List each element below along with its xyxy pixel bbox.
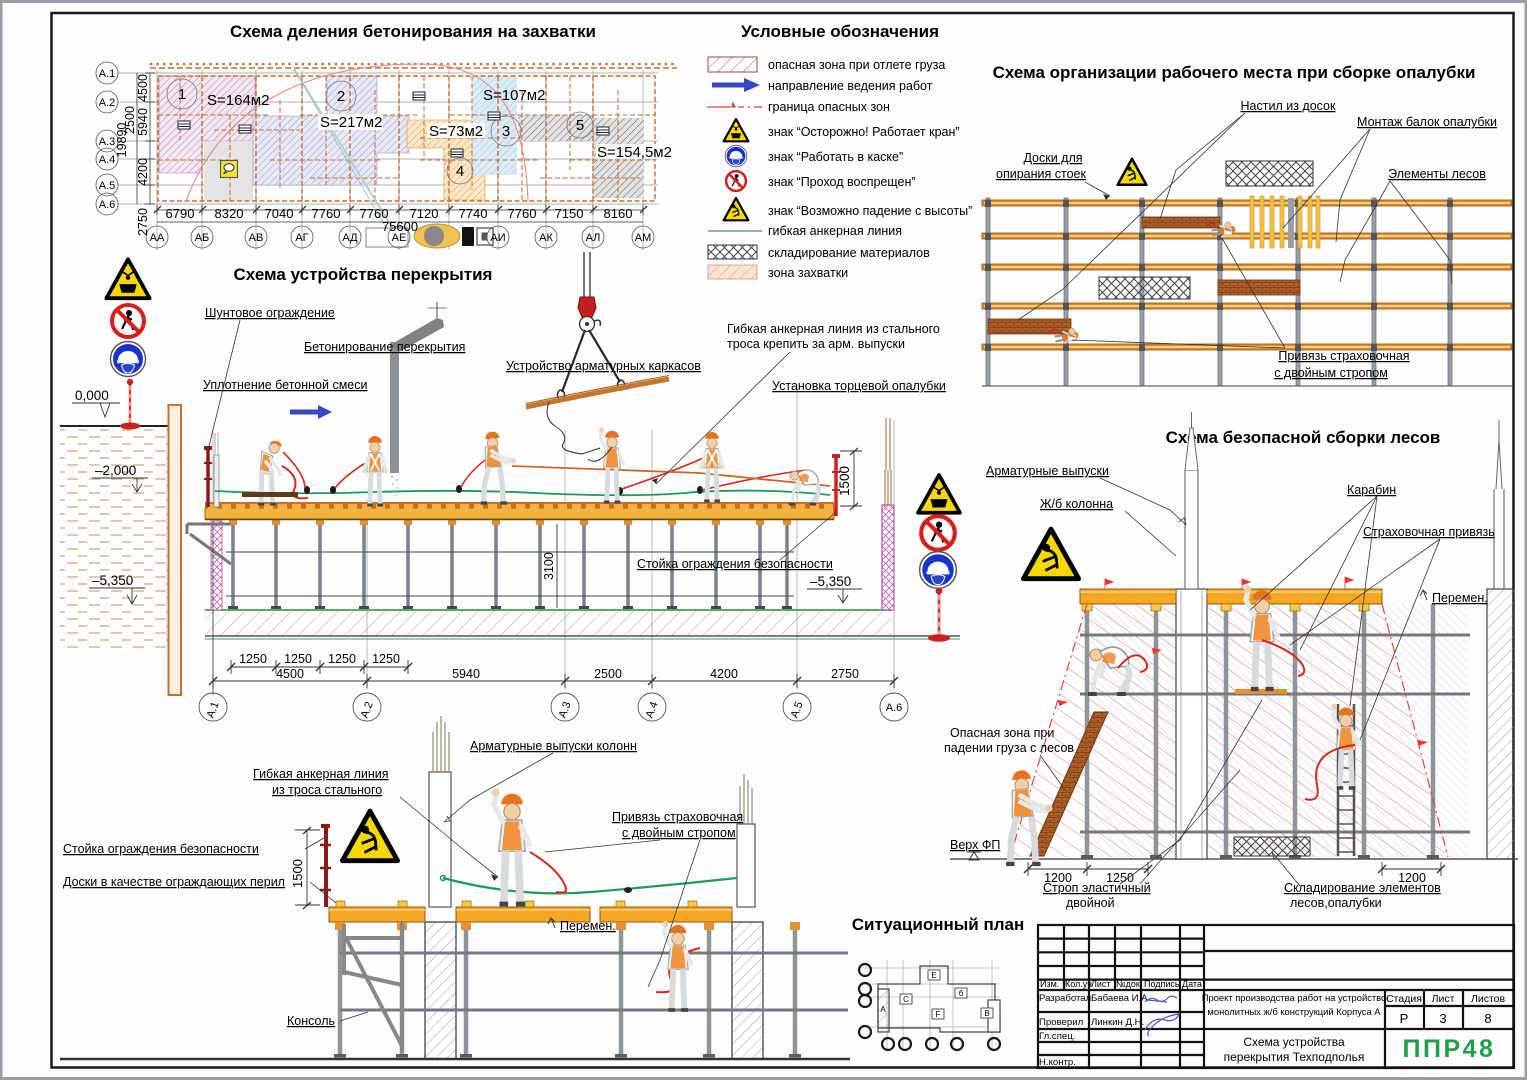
svg-text:знак “Работать в каске”: знак “Работать в каске” xyxy=(768,150,903,164)
svg-text:5: 5 xyxy=(576,117,584,134)
svg-text:Установка торцевой опалубки: Установка торцевой опалубки xyxy=(772,379,946,393)
svg-text:Гибкая анкерная линия: Гибкая анкерная линия xyxy=(253,767,389,781)
svg-text:знак “Проход воспрещен”: знак “Проход воспрещен” xyxy=(768,175,916,189)
svg-text:Лист: Лист xyxy=(1091,979,1111,989)
svg-text:8320: 8320 xyxy=(215,206,244,221)
svg-text:4500: 4500 xyxy=(276,667,304,681)
svg-text:гибкая анкерная линия: гибкая анкерная линия xyxy=(768,224,902,238)
svg-text:Стойка ограждения безопасности: Стойка ограждения безопасности xyxy=(637,557,833,571)
svg-text:двойной: двойной xyxy=(1066,896,1115,910)
svg-text:7150: 7150 xyxy=(555,206,584,221)
svg-text:Условные обозначения: Условные обозначения xyxy=(741,22,939,41)
svg-text:8: 8 xyxy=(1484,1011,1491,1026)
svg-text:7040: 7040 xyxy=(265,206,294,221)
svg-text:3100: 3100 xyxy=(542,552,556,580)
svg-text:6790: 6790 xyxy=(166,206,195,221)
svg-text:складирование материалов: складирование материалов xyxy=(768,246,930,260)
svg-text:А.5: А.5 xyxy=(99,180,116,192)
svg-text:А.6: А.6 xyxy=(99,199,116,211)
svg-text:АМ: АМ xyxy=(635,232,652,244)
svg-text:S=73м2: S=73м2 xyxy=(429,123,483,140)
svg-text:3: 3 xyxy=(502,123,510,140)
svg-text:с двойным стропом: с двойным стропом xyxy=(1274,366,1388,380)
svg-text:Устройство арматурных каркасов: Устройство арматурных каркасов xyxy=(506,359,701,373)
svg-text:АК: АК xyxy=(539,232,553,244)
svg-text:Проект производства работ на у: Проект производства работ на устройство xyxy=(1202,992,1387,1003)
svg-text:1: 1 xyxy=(178,86,186,103)
svg-text:перекрытия Техподполья: перекрытия Техподполья xyxy=(1224,1050,1365,1064)
svg-text:Листов: Листов xyxy=(1471,993,1506,1005)
svg-text:–5,350: –5,350 xyxy=(92,573,133,588)
svg-text:3: 3 xyxy=(1439,1011,1446,1026)
svg-text:Схема безопасной сборки лесов: Схема безопасной сборки лесов xyxy=(1166,428,1441,447)
svg-text:направление ведения работ: направление ведения работ xyxy=(768,79,933,93)
svg-text:19890: 19890 xyxy=(115,123,129,158)
svg-text:опасная зона при отлете груза: опасная зона при отлете груза xyxy=(768,58,945,72)
svg-text:лесов,опалубки: лесов,опалубки xyxy=(1290,896,1382,910)
svg-text:Доски для: Доски для xyxy=(1023,151,1082,165)
svg-text:S=107м2: S=107м2 xyxy=(483,87,545,104)
svg-text:Дата: Дата xyxy=(1182,979,1202,989)
svg-text:8160: 8160 xyxy=(604,206,633,221)
svg-text:1500: 1500 xyxy=(837,466,852,496)
svg-text:Лист: Лист xyxy=(1432,993,1455,1005)
svg-text:АИ: АИ xyxy=(490,232,505,244)
svg-text:Ж/б колонна: Ж/б колонна xyxy=(1040,497,1113,511)
svg-text:Элементы лесов: Элементы лесов xyxy=(1388,167,1486,181)
svg-text:5940: 5940 xyxy=(136,108,150,136)
svg-text:Линкин Д.Н.: Линкин Д.Н. xyxy=(1091,1017,1144,1028)
svg-text:Изм.: Изм. xyxy=(1040,979,1059,989)
svg-text:Кол.уч: Кол.уч xyxy=(1065,979,1092,989)
svg-text:Привязь страховочная: Привязь страховочная xyxy=(612,810,743,824)
svg-text:Ситуационный план: Ситуационный план xyxy=(852,915,1024,934)
svg-text:АА: АА xyxy=(150,232,165,244)
svg-text:Подпись: Подпись xyxy=(1144,979,1180,989)
svg-text:1250: 1250 xyxy=(372,652,400,666)
svg-text:Перемен.: Перемен. xyxy=(1432,591,1488,605)
svg-text:S=164м2: S=164м2 xyxy=(207,92,269,109)
svg-text:Стадия: Стадия xyxy=(1386,993,1422,1005)
svg-text:троса крепить за арм. выпуски: троса крепить за арм. выпуски xyxy=(727,337,905,351)
svg-text:падении груза с лесов: падении груза с лесов xyxy=(944,741,1074,755)
svg-text:Разработал: Разработал xyxy=(1039,993,1091,1004)
svg-text:S=217м2: S=217м2 xyxy=(320,114,382,131)
svg-text:АД: АД xyxy=(342,232,358,244)
svg-text:1500: 1500 xyxy=(290,859,305,888)
svg-text:Складирование элементов: Складирование элементов xyxy=(1284,881,1441,895)
svg-text:опирания стоек: опирания стоек xyxy=(996,167,1086,181)
svg-text:–2,000: –2,000 xyxy=(95,463,136,478)
svg-text:Схема устройства: Схема устройства xyxy=(1243,1035,1345,1049)
svg-text:зона захватки: зона захватки xyxy=(768,266,848,280)
svg-text:Гибкая анкерная линия из сталь: Гибкая анкерная линия из стального xyxy=(727,322,940,336)
svg-text:№док.: №док. xyxy=(1116,979,1142,989)
svg-text:Р: Р xyxy=(1400,1011,1409,1026)
svg-text:монолитных ж/б конструкций Кор: монолитных ж/б конструкций Корпуса А xyxy=(1207,1006,1381,1017)
svg-text:Перемен.: Перемен. xyxy=(560,919,616,933)
svg-text:из троса стального: из троса стального xyxy=(272,783,382,797)
svg-text:4500: 4500 xyxy=(136,74,150,102)
svg-text:Е: Е xyxy=(931,971,936,980)
svg-text:АВ: АВ xyxy=(249,232,264,244)
svg-text:с двойным стропом: с двойным стропом xyxy=(622,826,736,840)
svg-text:АГ: АГ xyxy=(295,232,308,244)
svg-text:Гл.спец.: Гл.спец. xyxy=(1039,1031,1075,1042)
svg-text:Проверил: Проверил xyxy=(1039,1017,1083,1028)
svg-text:2750: 2750 xyxy=(136,208,150,236)
svg-text:Уплотнение бетонной смеси: Уплотнение бетонной смеси xyxy=(203,378,368,392)
svg-text:2: 2 xyxy=(337,88,345,105)
svg-text:знак “Возможно падение с высот: знак “Возможно падение с высоты” xyxy=(768,204,972,218)
svg-text:ППР48: ППР48 xyxy=(1403,1035,1496,1063)
svg-text:Схема устройства перекрытия: Схема устройства перекрытия xyxy=(234,265,493,284)
svg-text:А.3: А.3 xyxy=(99,136,116,148)
svg-text:Стойка ограждения безопасности: Стойка ограждения безопасности xyxy=(63,842,259,856)
svg-text:Схема деления бетонирования на: Схема деления бетонирования на захватки xyxy=(230,22,596,41)
svg-text:Консоль: Консоль xyxy=(287,1014,335,1028)
svg-text:4200: 4200 xyxy=(136,158,150,186)
svg-text:Строп эластичный: Строп эластичный xyxy=(1043,881,1151,895)
svg-text:Верх ФП: Верх ФП xyxy=(950,838,1000,852)
svg-text:7760: 7760 xyxy=(508,206,537,221)
svg-text:1250: 1250 xyxy=(328,652,356,666)
svg-text:Привязь страховочная: Привязь страховочная xyxy=(1278,349,1409,363)
svg-text:граница опасных зон: граница опасных зон xyxy=(768,100,890,114)
svg-text:7760: 7760 xyxy=(312,206,341,221)
svg-text:Н.контр.: Н.контр. xyxy=(1039,1057,1076,1068)
svg-text:Бетонирование перекрытия: Бетонирование перекрытия xyxy=(304,340,465,354)
svg-text:знак “Осторожно! Работает кран: знак “Осторожно! Работает кран” xyxy=(768,125,960,139)
svg-text:б: б xyxy=(959,989,964,998)
svg-text:А: А xyxy=(880,1005,886,1014)
svg-text:С: С xyxy=(903,995,909,1004)
svg-text:А.2: А.2 xyxy=(99,97,116,109)
svg-text:4200: 4200 xyxy=(710,667,738,681)
svg-text:Арматурные выпуски: Арматурные выпуски xyxy=(986,464,1109,478)
svg-text:Страховочная привязь: Страховочная привязь xyxy=(1363,525,1495,539)
svg-text:А.1: А.1 xyxy=(99,68,116,80)
svg-text:7740: 7740 xyxy=(459,206,488,221)
svg-text:Схема организации рабочего мес: Схема организации рабочего места при сбо… xyxy=(993,63,1476,82)
svg-text:F: F xyxy=(936,1010,941,1019)
svg-text:1250: 1250 xyxy=(284,652,312,666)
svg-text:2750: 2750 xyxy=(831,667,859,681)
svg-text:А.4: А.4 xyxy=(99,154,116,166)
svg-text:В: В xyxy=(984,1009,989,1018)
svg-text:S=154,5м2: S=154,5м2 xyxy=(597,144,672,161)
svg-text:Бабаева И.А: Бабаева И.А xyxy=(1091,993,1148,1004)
svg-text:5940: 5940 xyxy=(452,667,480,681)
svg-text:АБ: АБ xyxy=(195,232,210,244)
svg-text:А.6: А.6 xyxy=(886,702,903,714)
svg-text:Карабин: Карабин xyxy=(1347,483,1396,497)
svg-text:Настил из досок: Настил из досок xyxy=(1241,99,1336,113)
svg-text:–5,350: –5,350 xyxy=(810,574,851,589)
svg-text:0,000: 0,000 xyxy=(75,388,109,403)
svg-text:2500: 2500 xyxy=(594,667,622,681)
svg-text:4: 4 xyxy=(456,163,464,180)
svg-text:Арматурные выпуски колонн: Арматурные выпуски колонн xyxy=(470,739,637,753)
svg-text:1250: 1250 xyxy=(239,652,267,666)
svg-text:АЛ: АЛ xyxy=(586,232,601,244)
svg-text:Монтаж балок опалубки: Монтаж балок опалубки xyxy=(1357,115,1497,129)
svg-text:Доски в качестве ограждающих п: Доски в качестве ограждающих перил xyxy=(63,875,285,889)
svg-text:Шунтовое ограждение: Шунтовое ограждение xyxy=(205,306,335,320)
svg-text:Опасная зона при: Опасная зона при xyxy=(950,726,1054,740)
svg-text:75600: 75600 xyxy=(382,219,418,234)
